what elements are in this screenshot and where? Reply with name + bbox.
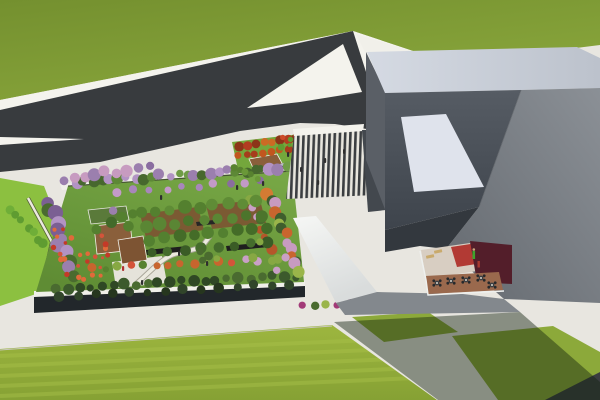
garden-top-row-plant [223, 165, 232, 174]
person-figure [178, 251, 180, 256]
garden-bottom-row-plant [87, 284, 94, 291]
garden-bottom-row-plant [222, 275, 229, 282]
plaza-left-hedge-plant [288, 137, 293, 142]
garden-mid-purple-plant [129, 185, 137, 193]
terrace-chair [468, 276, 471, 279]
garden-top-row-plant [176, 170, 183, 177]
terrace-table-top-dot [491, 284, 493, 286]
facade-trees-plant [74, 292, 83, 301]
orchard-row1-plant [237, 199, 248, 210]
garden-top-row-plant [167, 173, 174, 180]
garden-bottom-row-plant [144, 279, 153, 288]
orchard-row3-plant [246, 223, 258, 235]
garden-topleft-purple-plant [60, 176, 69, 185]
person-figure [262, 181, 264, 186]
park-green-hedge-plant [231, 164, 238, 171]
left-strip-hedges-plant [17, 216, 24, 223]
render-stage [0, 0, 600, 400]
facade-trees-plant [213, 283, 224, 294]
facade-trees-plant [144, 289, 151, 296]
coral-swath-plant [98, 266, 102, 270]
garden-inner-shrubs-plant [164, 262, 171, 269]
garden-right-col-plant [293, 266, 305, 278]
park-tree-row2-plant [259, 150, 267, 158]
garden-topleft-purple-plant [134, 163, 144, 173]
orchard-row1-plant [222, 197, 234, 209]
terrace-table-top-dot [480, 277, 482, 279]
pavilion-trees-plant [128, 209, 137, 218]
coral-swath-plant [62, 256, 68, 262]
facade-trees-plant [92, 289, 101, 298]
orchard-row2-plant [153, 217, 167, 231]
coral-swath-plant [100, 234, 105, 239]
garden-right-col-plant [282, 228, 293, 239]
garden-topleft-purple-plant [112, 169, 122, 179]
terrace-chair [494, 286, 497, 289]
orchard-row3-plant [189, 230, 200, 241]
terrace-table-top-dot [450, 280, 452, 282]
coral-swath-plant [64, 272, 69, 277]
terrace-chair [487, 281, 490, 284]
orchard-row3-plant [232, 224, 244, 236]
terrace-chair [439, 284, 442, 287]
orchard-row2-plant [241, 210, 251, 220]
garden-bottom-row-plant [232, 272, 243, 283]
orchard-row2-plant [199, 215, 209, 225]
garden-inner-shrubs-plant [176, 260, 183, 267]
garden-inner-shrubs-plant [103, 266, 109, 272]
facade-trees-plant [234, 283, 242, 291]
garden-bottom-row-plant [76, 283, 86, 293]
person-figure [317, 180, 319, 185]
orchard-row3-plant [143, 235, 155, 247]
terrace-chair [453, 282, 456, 285]
garden-top-row-plant [271, 164, 283, 176]
terrace-chair [453, 277, 456, 280]
coral-swath-plant [103, 241, 109, 247]
orchard-row3-plant [158, 232, 170, 244]
terrace-chair [476, 274, 479, 277]
plaza-left-hedge-plant [280, 135, 285, 140]
coral-swath-plant [76, 264, 80, 268]
orchard-row2-plant [227, 213, 238, 224]
orchard-row1-plant [178, 200, 192, 214]
terrace-chair [432, 279, 435, 282]
facade-trees-plant [284, 280, 294, 290]
garden-mid-purple-plant [146, 187, 153, 194]
terrace-person-head [473, 248, 476, 251]
orchard-row3-plant [261, 223, 272, 234]
garden-bottom-row-plant [188, 275, 200, 287]
orchard-row2-plant [183, 216, 194, 227]
facade-trees-plant [197, 285, 206, 294]
left-strip-hedges-plant [38, 238, 48, 248]
terrace-chair [483, 279, 486, 282]
orchard-row3-plant [218, 228, 228, 238]
park-green-hedge-plant [255, 176, 261, 182]
coral-swath-plant [99, 274, 103, 278]
orchard-row1-plant [250, 195, 262, 207]
garden-inner-shrubs-plant [128, 261, 136, 269]
park-tree-row2-plant [234, 152, 241, 159]
pavilion-trees-plant [92, 225, 102, 235]
orchard-row4-plant [214, 242, 224, 252]
garden-topleft-purple-plant [70, 173, 80, 183]
building-roof-band [367, 47, 600, 93]
coral-swath-plant [69, 235, 75, 241]
coral-swath-plant [101, 256, 104, 259]
orchard-row1-plant [194, 202, 206, 214]
garden-mid-purple-plant [178, 183, 185, 190]
orchard-row2-plant [140, 220, 153, 233]
coral-swath-plant [90, 272, 95, 277]
person-figure [324, 158, 326, 163]
garden-mid-purple-plant [196, 184, 203, 191]
garden-bottom-row-plant [202, 277, 211, 286]
striped-plaza [286, 131, 375, 199]
orchard-row4-plant [230, 242, 239, 251]
facade-trees-plant [177, 284, 187, 294]
facade-trees-plant [249, 280, 258, 289]
orchard-row4-plant [148, 248, 157, 257]
person-figure [343, 149, 345, 154]
park-tree-row1-plant [261, 138, 269, 146]
garden-inner-shrubs-plant [268, 257, 276, 265]
park-green-hedge-plant [241, 168, 248, 175]
aerial-render-canvas [0, 0, 600, 400]
garden-bottom-row-plant [152, 277, 162, 287]
garden-bottom-row-plant [177, 276, 185, 284]
garden-inner-shrubs-plant [190, 259, 199, 268]
coral-swath-plant [58, 252, 63, 257]
garden-topleft-purple-plant [146, 162, 154, 170]
person-figure [141, 280, 143, 285]
building-strip-shrubs-plant [321, 300, 329, 308]
garden-inner-shrubs-plant [154, 262, 161, 269]
coral-swath-plant [93, 254, 98, 259]
park-tree-row2-plant [268, 148, 276, 156]
facade-trees-plant [268, 282, 276, 290]
garden-bottom-row-plant [110, 281, 119, 290]
coral-swath-plant [51, 245, 56, 250]
left-strip-hedges-plant [30, 228, 38, 236]
garden-topleft-purple-plant [98, 165, 109, 176]
orchard-row4-plant [246, 238, 255, 247]
garden-center-accent-plant [199, 257, 206, 264]
garden-bottom-row-plant [258, 272, 267, 281]
building-strip-shrubs-plant [311, 302, 319, 310]
coral-swath-plant [52, 228, 56, 232]
garden-bottom-row-plant [98, 282, 107, 291]
orchard-row2-plant [212, 214, 222, 224]
person-figure [160, 195, 162, 200]
person-figure [122, 266, 124, 271]
terrace-chair [432, 284, 435, 287]
person-figure [287, 152, 289, 157]
person-figure [300, 167, 302, 172]
park-tree-row1-plant [243, 141, 252, 150]
coral-swath-plant [76, 275, 81, 280]
garden-center-accent-plant [256, 238, 263, 245]
building-strip-shrubs-plant [299, 302, 306, 309]
garden-bottom-row-plant [164, 276, 175, 287]
garden-center-accent-plant [214, 255, 221, 262]
coral-swath-plant [64, 241, 68, 245]
garden-inner-shrubs-plant [113, 262, 122, 271]
facade-trees-plant [54, 292, 65, 303]
coral-swath-plant [81, 277, 86, 282]
garden-inner-shrubs-plant [228, 259, 235, 266]
park-tree-row1-plant [268, 139, 275, 146]
terrace-table-top-dot [436, 282, 438, 284]
coral-swath-plant [55, 235, 59, 239]
garden-mid-purple-plant [112, 188, 121, 197]
orchard-row3-plant [202, 227, 214, 239]
person-figure [236, 185, 238, 190]
coral-swath-plant [85, 251, 90, 256]
garden-mid-purple-plant [227, 180, 235, 188]
park-tree-row2-plant [251, 151, 258, 158]
terrace-table-top-dot [465, 279, 467, 281]
terrace-chair [446, 282, 449, 285]
pavilion-trees-plant [123, 221, 134, 232]
terrace-chair [476, 279, 479, 282]
park-green-hedge-plant [248, 171, 254, 177]
coral-swath-plant [85, 259, 90, 264]
facade-trees-plant [161, 287, 170, 296]
garden-topleft-purple-plant [120, 165, 132, 177]
garden-top-row-plant [197, 170, 207, 180]
plaza-left-hedge-plant [278, 144, 285, 151]
pavilion-trees-plant [117, 212, 128, 223]
garden-bottom-row-plant [132, 281, 141, 290]
person-figure [206, 261, 208, 266]
terrace-chair [439, 279, 442, 282]
terrace-chair [483, 274, 486, 277]
facade-trees-plant [108, 289, 117, 298]
orchard-row3-plant [174, 229, 187, 242]
orchard-row4-plant [163, 247, 172, 256]
plaza-left-hedge-plant [287, 143, 291, 147]
garden-mid-purple-plant [209, 179, 217, 187]
orchard-row1-plant [206, 199, 218, 211]
terrace-chair [468, 281, 471, 284]
orchard-row1-plant [150, 207, 160, 217]
orchard-row2-plant [256, 210, 268, 222]
orchard-row1-plant [164, 206, 174, 216]
orchard-row1-plant [136, 207, 147, 218]
garden-center-accent-plant [197, 248, 204, 255]
coral-swath-plant [105, 253, 110, 258]
pavilion-trees-plant [106, 217, 117, 228]
coral-swath-plant [61, 227, 65, 231]
park-tree-row1-plant [234, 142, 244, 152]
terrace-person-red [478, 261, 480, 268]
coral-swath-plant [78, 253, 82, 257]
park-tree-row1-plant [252, 140, 261, 149]
garden-bottom-row-plant [63, 284, 74, 295]
terrace-chair [461, 281, 464, 284]
garden-inner-shrubs-plant [139, 261, 147, 269]
terrace-chair [461, 276, 464, 279]
garden-mid-purple-plant [241, 179, 249, 187]
orchard-row4-plant [180, 245, 191, 256]
terrace-chair [487, 286, 490, 289]
pavilion-trees-plant [109, 207, 117, 215]
garden-inner-shrubs-plant [87, 263, 96, 272]
garden-top-row-plant [153, 169, 164, 180]
orchard-row2-plant [169, 219, 180, 230]
facade-trees-plant [125, 287, 134, 296]
garden-right-col2-plant [273, 267, 280, 274]
terrace-chair [446, 277, 449, 280]
garden-center-accent-plant [248, 253, 257, 262]
pavilion-deck-2 [118, 236, 147, 264]
terrace-chair [494, 281, 497, 284]
garden-mid-purple-plant [165, 187, 172, 194]
terrace-person-green [473, 251, 476, 259]
garden-inner-shrubs-plant [282, 253, 290, 261]
park-tree-row2-plant [244, 151, 251, 158]
